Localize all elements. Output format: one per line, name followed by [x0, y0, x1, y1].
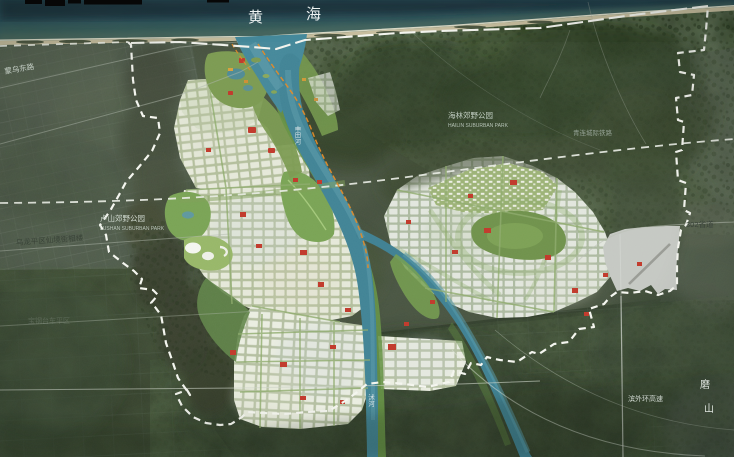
svg-text:申田河: 申田河 [294, 125, 301, 144]
svg-text:磨: 磨 [700, 379, 710, 391]
svg-text:卢山郊野公园: 卢山郊野公园 [100, 213, 145, 223]
svg-text:HAILIN SUBURBAN PARK: HAILIN SUBURBAN PARK [448, 123, 509, 129]
svg-text:海林郊野公园: 海林郊野公园 [448, 110, 493, 120]
svg-text:黄: 黄 [248, 9, 263, 26]
svg-text:滨外环高速: 滨外环高速 [628, 394, 663, 403]
svg-text:宝钢台车平区: 宝钢台车平区 [28, 316, 70, 325]
svg-text:302省道: 302省道 [686, 219, 714, 229]
svg-text:山: 山 [704, 403, 714, 415]
svg-text:LUSHAN SUBURBAN PARK: LUSHAN SUBURBAN PARK [100, 226, 165, 232]
svg-text:青连城际铁路: 青连城际铁路 [573, 128, 613, 137]
svg-text:海: 海 [306, 6, 321, 23]
